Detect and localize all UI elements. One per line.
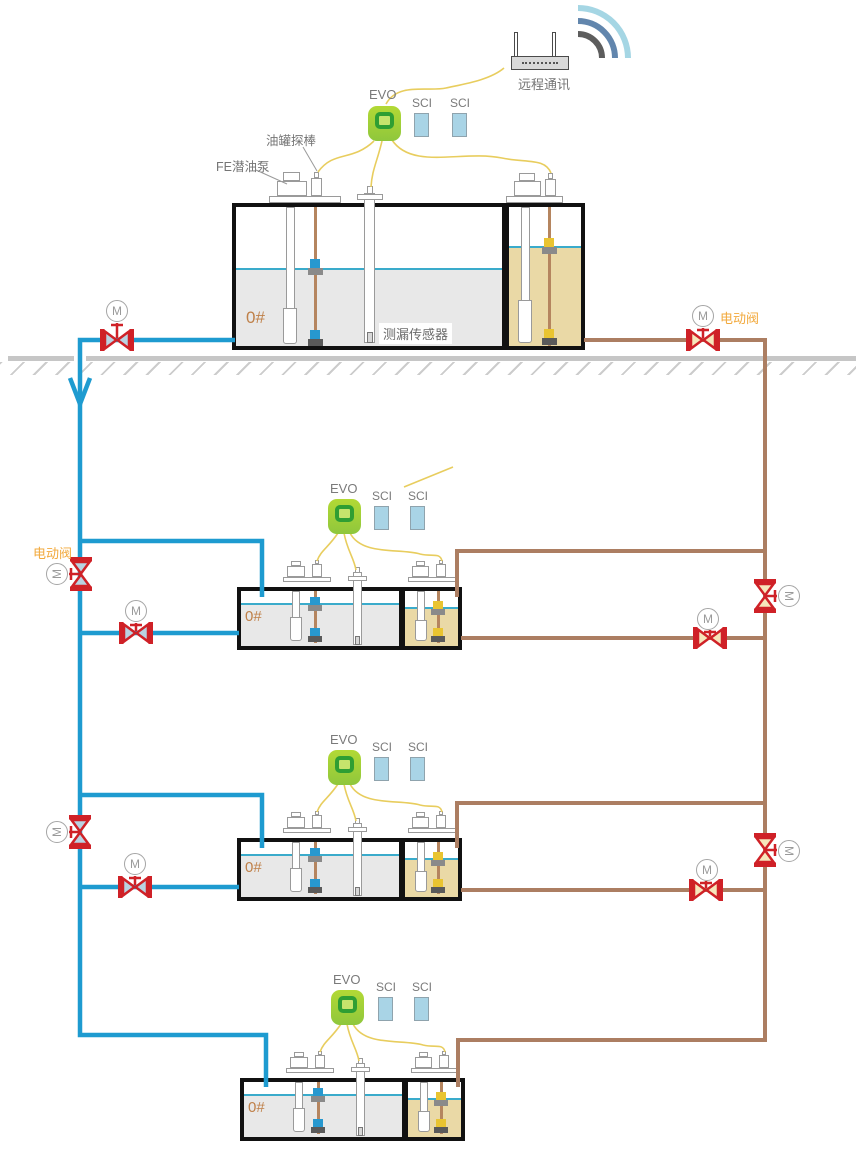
- station1-right-pump-tube: [521, 207, 530, 302]
- probe-head-stub: [315, 811, 319, 815]
- ground-line-left: [8, 356, 74, 361]
- sci-module-st1-1: [414, 113, 429, 137]
- right-probe-float-bottom: [436, 1119, 446, 1127]
- motor-valve-main-right-st2: [754, 579, 776, 613]
- leak-sensor-stub: [355, 567, 360, 573]
- station1-probe-rod: [314, 207, 317, 346]
- valve-motor-branch-left-st2: M: [125, 600, 147, 622]
- right-pump-head: [412, 566, 429, 577]
- right-manhole-flange: [408, 828, 456, 833]
- station1-right-pump-body: [518, 300, 532, 343]
- sci-module-st2-1: [374, 506, 389, 530]
- right-probe-collar-top: [431, 609, 445, 615]
- station1-pump-body: [283, 308, 297, 344]
- station1-right-probe-float-top: [544, 238, 554, 247]
- station1-right-pump-head: [514, 181, 541, 196]
- valve-motor-letter: M: [50, 827, 64, 837]
- sci-label-st2-1: SCI: [372, 489, 392, 503]
- probe-float-bottom: [313, 1119, 323, 1127]
- leak-sensor-label: 测漏传感器: [379, 323, 452, 344]
- electric-valve-label-st2: 电动阀: [33, 543, 72, 562]
- evo-label-st1: EVO: [369, 87, 396, 102]
- right-probe-head-stub: [439, 560, 443, 564]
- fuel-grade-label: 0#: [245, 859, 262, 876]
- evo-console-st2: [328, 499, 361, 534]
- station1-right-pump-head-cap: [519, 173, 535, 181]
- motor-valve-station1-right: [686, 329, 720, 351]
- motor-valve-main-right-st3: [754, 833, 776, 867]
- sci-module-st2-2: [410, 506, 425, 530]
- pump-body: [290, 617, 302, 641]
- ground-hatch: [0, 362, 856, 375]
- valve-motor-letter: M: [131, 604, 141, 618]
- sci-label-st4-1: SCI: [376, 980, 396, 994]
- station1-leak-sensor-stub: [367, 186, 373, 194]
- diagram-canvas: 0# 0#: [0, 0, 856, 1154]
- probe-float-top: [310, 597, 320, 605]
- tank-divider: [399, 838, 405, 901]
- manhole-flange: [283, 577, 331, 582]
- valve-motor-main-right-st2: M: [778, 585, 800, 607]
- station1-probe-float-bottom: [310, 330, 320, 339]
- right-probe-collar-bottom: [431, 636, 445, 642]
- probe-collar-top: [308, 605, 322, 611]
- station1-right-manhole-flange: [506, 196, 563, 203]
- probe-float-top: [313, 1088, 323, 1096]
- station1-right-probe-head: [545, 179, 556, 196]
- flow-direction-arrow: [70, 378, 90, 404]
- pump-head: [287, 566, 305, 577]
- station1-right-probe-rod: [548, 207, 551, 346]
- right-pump-tube: [420, 1082, 428, 1112]
- probe-float-bottom: [310, 628, 320, 636]
- right-pump-tube: [417, 842, 425, 872]
- manhole-flange: [283, 828, 331, 833]
- sci-label-st3-1: SCI: [372, 740, 392, 754]
- leak-sensor-flange: [348, 576, 367, 581]
- motor-valve-main-left-st2: [70, 557, 92, 591]
- evo-screen: [338, 996, 357, 1013]
- sci-module-st3-2: [410, 757, 425, 781]
- pump-head-cap: [294, 1052, 304, 1057]
- return-pipe-brown: [457, 340, 765, 1087]
- right-pump-body: [418, 1111, 430, 1132]
- valve-motor-main-right-st3: M: [778, 840, 800, 862]
- pump-tube: [295, 1082, 303, 1109]
- ground-line-right: [86, 356, 856, 361]
- valve-motor-st1-left: M: [106, 300, 128, 322]
- evo-label-st2: EVO: [330, 481, 357, 496]
- station1-right-probe-float-bottom: [544, 329, 554, 338]
- sci-label-st4-2: SCI: [412, 980, 432, 994]
- valve-motor-letter: M: [782, 591, 796, 601]
- right-probe-collar-bottom: [434, 1127, 448, 1133]
- sci-label-st1-2: SCI: [450, 96, 470, 110]
- motor-valve-station1-left: [100, 329, 134, 351]
- right-manhole-flange: [411, 1068, 459, 1073]
- right-pump-head: [412, 817, 429, 828]
- right-pump-head: [415, 1057, 432, 1068]
- valve-motor-letter: M: [50, 569, 64, 579]
- right-probe-head: [436, 815, 446, 828]
- right-probe-float-bottom: [433, 879, 443, 887]
- right-manhole-flange: [408, 577, 456, 582]
- sci-module-st1-2: [452, 113, 467, 137]
- fuel-grade-label: 0#: [248, 1099, 265, 1116]
- station-2: 0#: [237, 560, 465, 652]
- valve-motor-letter: M: [698, 309, 708, 323]
- right-probe-head-stub: [442, 1051, 446, 1055]
- sci-module-st3-1: [374, 757, 389, 781]
- station1-pump-head-cap: [283, 172, 300, 181]
- evo-label-st3: EVO: [330, 732, 357, 747]
- evo-console-st3: [328, 750, 361, 785]
- probe-head-stub: [315, 560, 319, 564]
- motor-valve-main-left-st3: [69, 815, 91, 849]
- station1-manhole-flange: [269, 196, 341, 203]
- probe-head: [315, 1055, 325, 1068]
- evo-screen: [335, 756, 354, 773]
- station1-leak-sensor-flange: [357, 194, 383, 200]
- right-probe-float-bottom: [433, 628, 443, 636]
- evo-console-st1: [368, 106, 401, 141]
- router-led-strip: [522, 62, 558, 64]
- probe-collar-top: [308, 856, 322, 862]
- station-4: 0#: [240, 1051, 468, 1143]
- pump-tube: [292, 842, 300, 869]
- fe-pump-label: FE潜油泵: [216, 156, 269, 175]
- leak-sensor-tube: [353, 823, 362, 896]
- sci-label-st1-1: SCI: [412, 96, 432, 110]
- probe-head-stub: [318, 1051, 322, 1055]
- leak-sensor-stub: [358, 1058, 363, 1064]
- station1-leak-sensor-tube: [364, 193, 375, 343]
- router-antenna-right: [552, 32, 556, 57]
- probe-collar-top: [311, 1096, 325, 1102]
- supply-pipe-blue: [80, 340, 266, 1087]
- station1-right-probe-collar-top: [542, 247, 557, 254]
- valve-motor-branch-right-st2: M: [697, 608, 719, 630]
- tank-divider: [399, 587, 405, 650]
- valve-motor-letter: M: [702, 863, 712, 877]
- motor-valve-branch-right-st3: [689, 879, 723, 901]
- station1-probe-float-top: [310, 259, 320, 268]
- probe-float-top: [310, 848, 320, 856]
- fuel-grade-label-st1: 0#: [246, 308, 265, 328]
- right-pump-tube: [417, 591, 425, 621]
- probe-head: [312, 564, 322, 577]
- station1-pump-tube: [286, 207, 295, 310]
- right-probe-collar-bottom: [431, 887, 445, 893]
- probe-collar-bottom: [311, 1127, 325, 1133]
- right-pump-head-cap: [416, 561, 425, 566]
- right-pump-head-cap: [416, 812, 425, 817]
- pump-tube: [292, 591, 300, 618]
- valve-motor-branch-left-st3: M: [124, 853, 146, 875]
- station1-leak-sensor-tip: [367, 332, 373, 343]
- pump-body: [290, 868, 302, 892]
- leak-sensor-tip: [355, 636, 360, 645]
- manhole-flange: [286, 1068, 334, 1073]
- right-probe-head-stub: [439, 811, 443, 815]
- right-probe-float-top: [433, 601, 443, 609]
- pump-head: [287, 817, 305, 828]
- pump-head-cap: [291, 561, 301, 566]
- station-3: 0#: [237, 811, 465, 903]
- wifi-signal-icon: [578, 8, 628, 58]
- motor-valve-branch-right-st2: [693, 627, 727, 649]
- sci-module-st4-1: [378, 997, 393, 1021]
- pump-head: [290, 1057, 308, 1068]
- pump-head-cap: [291, 812, 301, 817]
- station1-probe-head: [311, 178, 322, 196]
- station1-right-probe-collar-bottom: [542, 338, 557, 345]
- right-probe-collar-top: [434, 1100, 448, 1106]
- right-pump-body: [415, 871, 427, 892]
- electric-valve-label-st1: 电动阀: [720, 308, 759, 327]
- motor-valve-branch-left-st3: [118, 876, 152, 898]
- right-pump-head-cap: [419, 1052, 428, 1057]
- router: [511, 56, 569, 70]
- fuel-grade-label: 0#: [245, 608, 262, 625]
- valve-motor-letter: M: [703, 612, 713, 626]
- right-probe-float-top: [436, 1092, 446, 1100]
- leak-sensor-flange: [351, 1067, 370, 1072]
- probe-head: [312, 815, 322, 828]
- station1-probe-collar-top: [308, 268, 323, 275]
- tank-probe-label: 油罐探棒: [266, 130, 316, 149]
- station1-right-probe-head-stub: [548, 173, 553, 179]
- evo-screen: [375, 112, 394, 129]
- remote-comm-label: 远程通讯: [518, 74, 570, 93]
- station1-pump-head: [277, 181, 307, 196]
- sci-label-st2-2: SCI: [408, 489, 428, 503]
- valve-motor-main-left-st3: M: [46, 821, 68, 843]
- sci-label-st3-2: SCI: [408, 740, 428, 754]
- valve-motor-letter: M: [130, 857, 140, 871]
- sci-module-st4-2: [414, 997, 429, 1021]
- right-probe-float-top: [433, 852, 443, 860]
- leak-sensor-tip: [358, 1127, 363, 1136]
- router-antenna-left: [514, 32, 518, 57]
- probe-collar-bottom: [308, 887, 322, 893]
- leak-sensor-tube: [356, 1063, 365, 1136]
- station1-tank-divider: [502, 203, 509, 350]
- valve-motor-st1-right: M: [692, 305, 714, 327]
- leak-sensor-flange: [348, 827, 367, 832]
- probe-float-bottom: [310, 879, 320, 887]
- right-probe-head: [439, 1055, 449, 1068]
- right-probe-collar-top: [431, 860, 445, 866]
- probe-collar-bottom: [308, 636, 322, 642]
- evo-console-st4: [331, 990, 364, 1025]
- station1-probe-collar-bottom: [308, 339, 323, 346]
- leak-sensor-stub: [355, 818, 360, 824]
- valve-motor-main-left-st2: M: [46, 563, 68, 585]
- tank-divider: [402, 1078, 408, 1141]
- valve-motor-letter: M: [782, 846, 796, 856]
- evo-screen: [335, 505, 354, 522]
- leak-sensor-tube: [353, 572, 362, 645]
- valve-motor-branch-right-st3: M: [696, 859, 718, 881]
- right-pump-body: [415, 620, 427, 641]
- valve-motor-letter: M: [112, 304, 122, 318]
- leak-sensor-tip: [355, 887, 360, 896]
- motor-valve-branch-left-st2: [119, 622, 153, 644]
- evo-label-st4: EVO: [333, 972, 360, 987]
- right-probe-head: [436, 564, 446, 577]
- pump-body: [293, 1108, 305, 1132]
- station1-probe-head-stub: [314, 172, 319, 178]
